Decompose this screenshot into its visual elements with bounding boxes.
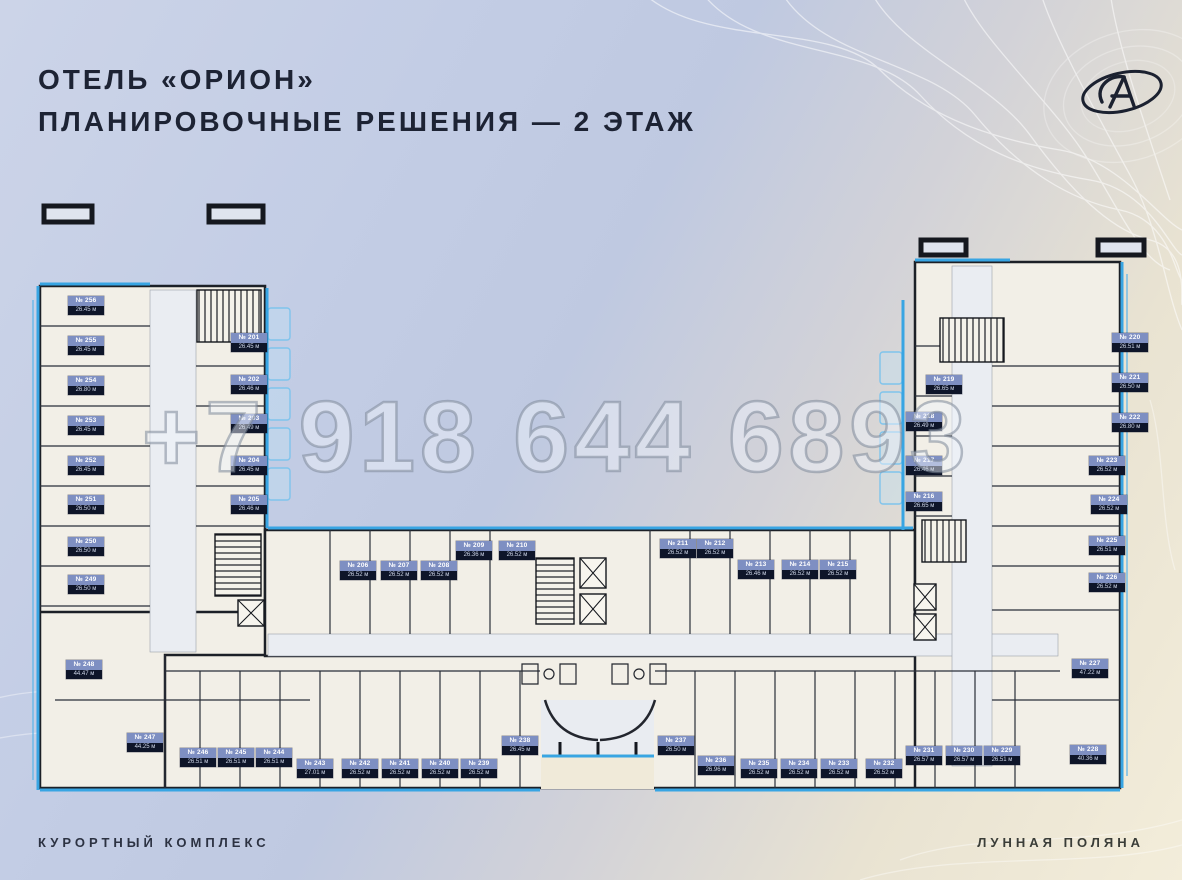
balcony-markers xyxy=(44,206,1144,255)
poster-page: ОТЕЛЬ «ОРИОН» ПЛАНИРОВОЧНЫЕ РЕШЕНИЯ — 2 … xyxy=(0,0,1182,880)
courtyard-balconies xyxy=(268,308,902,504)
floor-plan-drawing xyxy=(0,0,1182,880)
